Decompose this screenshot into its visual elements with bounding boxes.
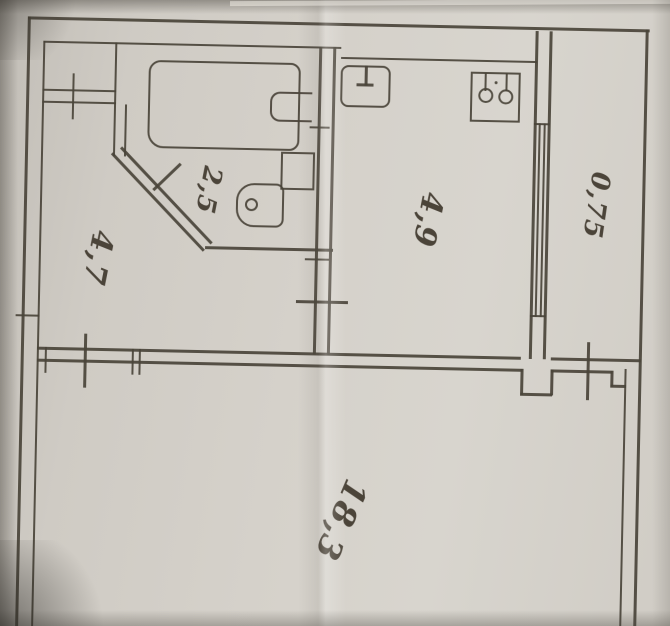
wall-right-outer — [633, 29, 649, 626]
wall-hatch-tick — [310, 126, 330, 128]
toilet-bowl — [236, 183, 285, 228]
wall-jog-horizontal — [610, 385, 626, 388]
floor-plan: 2,5 4,7 4,9 0,75 18,3 — [0, 0, 670, 626]
door-jamb-left — [520, 369, 523, 395]
toilet-tank — [280, 152, 315, 191]
window-cap-bottom — [530, 315, 546, 317]
wall-left-outer — [15, 16, 31, 626]
door-opening-tick — [72, 73, 75, 119]
wall-hall-kitchen-b — [327, 47, 336, 355]
door-jamb-right — [550, 369, 553, 395]
door-jamb-tick — [44, 347, 47, 373]
door-jamb-tick — [138, 349, 141, 375]
wall-living-top-b1 — [37, 359, 523, 372]
wall-left-inner — [31, 41, 45, 626]
wall-living-top-a1 — [37, 347, 521, 360]
door-jamb-tick — [305, 258, 329, 261]
wall-top-inner-kitchen — [341, 57, 537, 63]
door-jamb-tick — [131, 349, 134, 375]
area-label-bathroom: 2,5 — [189, 164, 228, 217]
wall-top-inner — [43, 41, 341, 49]
wall-hall-kitchen-a — [313, 46, 322, 354]
washbasin — [270, 91, 313, 122]
wall-bathroom-bottom — [205, 246, 333, 251]
stove-dot — [495, 81, 498, 84]
wall-hatch-tick — [16, 314, 40, 317]
door-threshold — [520, 393, 552, 396]
wall-kitchen-balcony-b — [543, 31, 552, 359]
area-label-balcony: 0,75 — [576, 170, 615, 241]
door-opening-tick — [296, 300, 348, 304]
area-label-living-room: 18,3 — [307, 474, 376, 567]
wall-living-top-a2 — [551, 357, 641, 361]
wall-living-top-b2 — [551, 369, 613, 373]
window-cap-top — [534, 123, 550, 125]
door-opening-tick — [152, 163, 181, 191]
wall-right-inner — [619, 369, 627, 626]
wall-top-outer — [28, 16, 650, 32]
wall-closet-right — [113, 42, 117, 156]
area-label-kitchen: 4,9 — [405, 189, 450, 250]
closet-door-line-b — [42, 101, 116, 105]
closet-door-line-a — [42, 89, 116, 93]
floor-plan-photo: 2,5 4,7 4,9 0,75 18,3 — [0, 0, 670, 626]
sink-tap-base — [356, 83, 373, 86]
area-label-hallway: 4,7 — [75, 227, 120, 288]
